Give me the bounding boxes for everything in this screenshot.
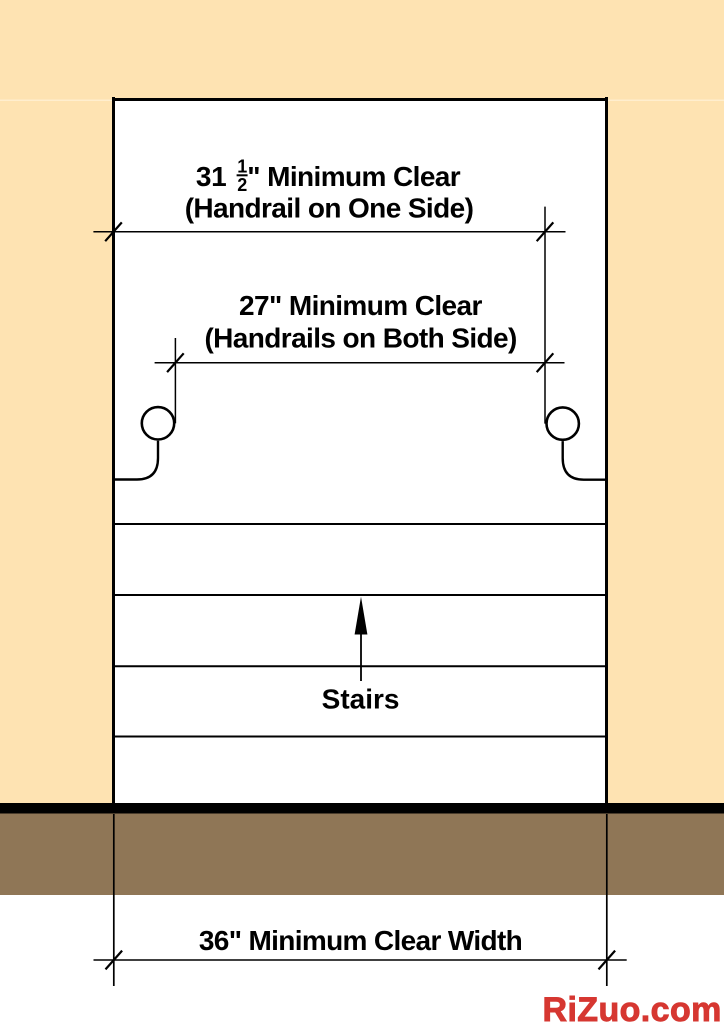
svg-text:27" Minimum Clear: 27" Minimum Clear xyxy=(239,290,482,321)
svg-text:31: 31 xyxy=(196,161,227,192)
svg-text:RiZuo.com: RiZuo.com xyxy=(543,991,722,1024)
svg-text:Stairs: Stairs xyxy=(322,684,400,715)
svg-text:1: 1 xyxy=(237,156,247,176)
svg-text:(Handrails on Both Side): (Handrails on Both Side) xyxy=(204,323,516,354)
svg-text:(Handrail on One Side): (Handrail on One Side) xyxy=(185,192,474,223)
svg-text:36" Minimum Clear Width: 36" Minimum Clear Width xyxy=(199,925,522,956)
svg-text:" Minimum Clear: " Minimum Clear xyxy=(247,161,460,192)
